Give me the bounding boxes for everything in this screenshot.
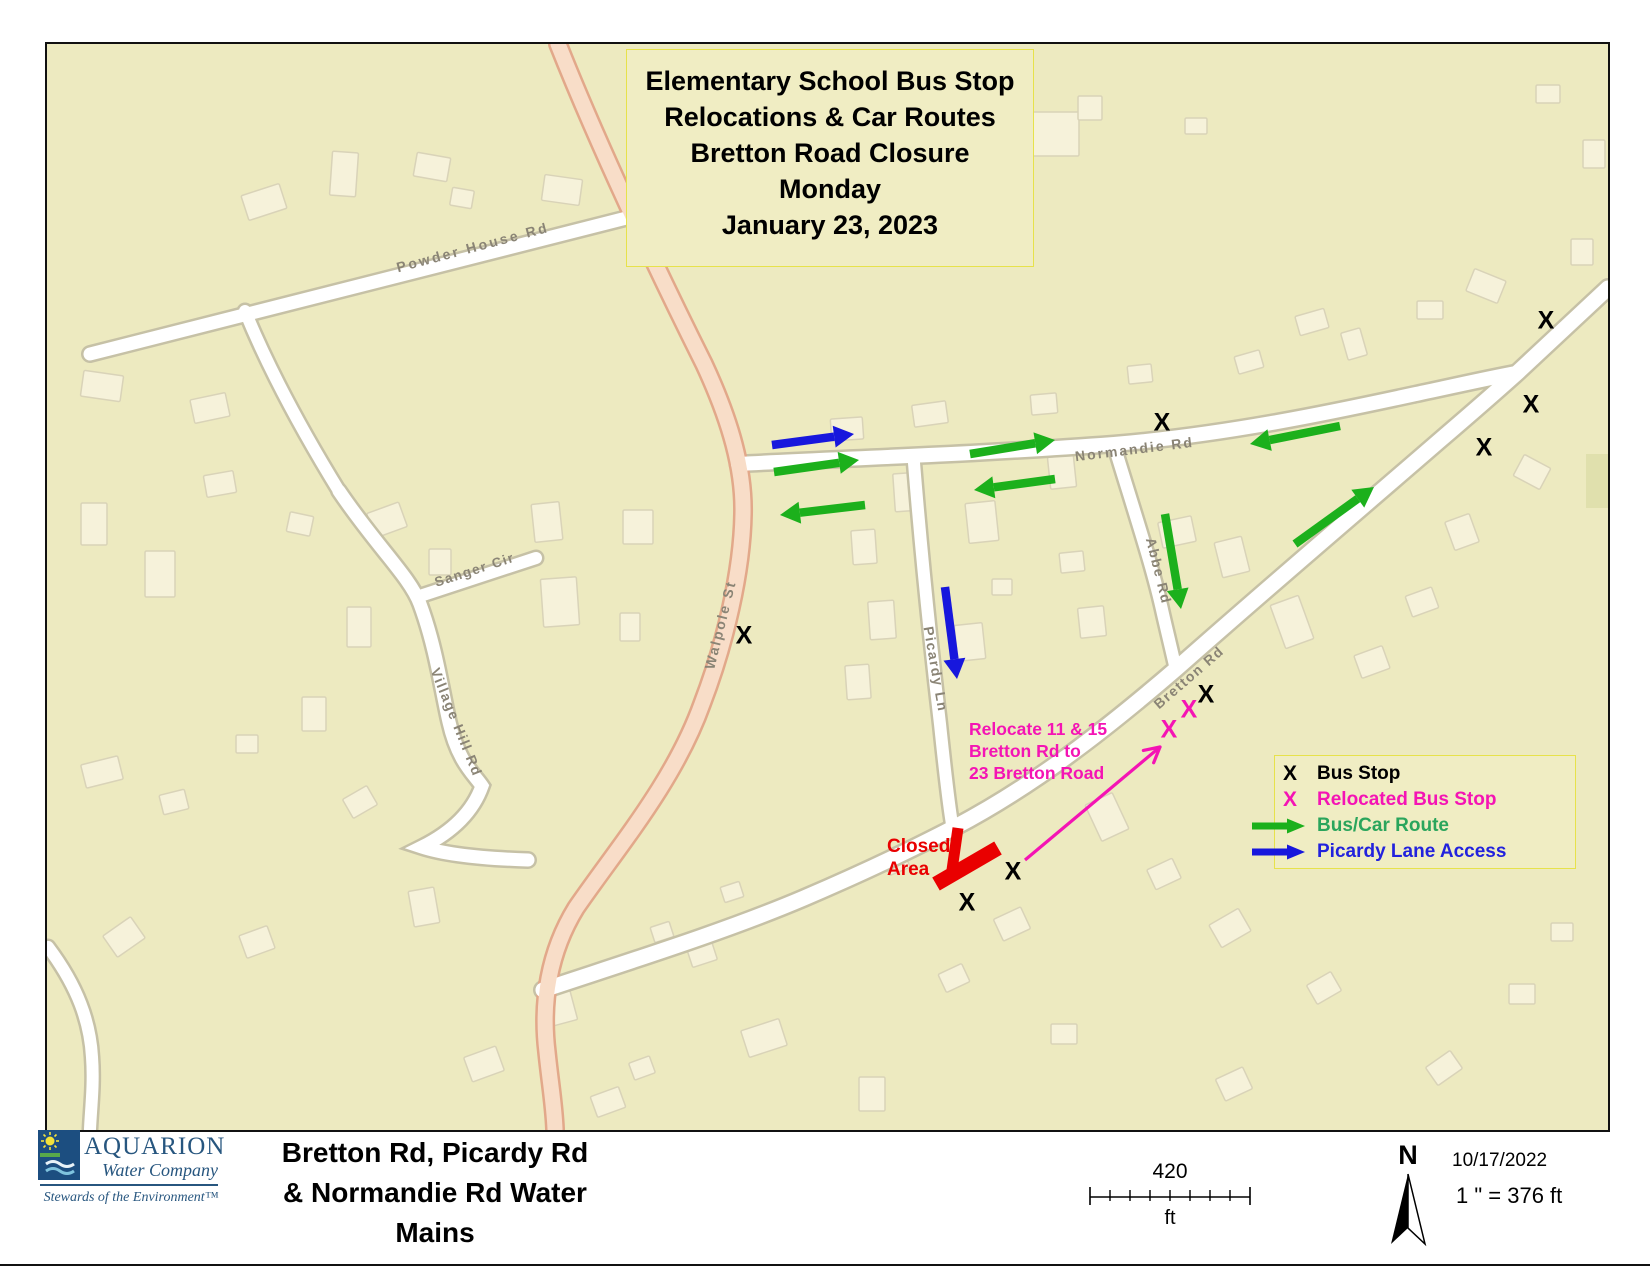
closed-area-label-line: Area [887,858,950,881]
relocation-note-line: 23 Bretton Road [969,762,1107,784]
house [954,623,986,662]
house [1551,923,1573,941]
title-line: Elementary School Bus Stop [627,63,1033,99]
closed-area-label-line: Closed [887,835,950,858]
aquarion-logo-icon [38,1130,80,1180]
house [1127,364,1153,384]
house [912,401,949,428]
house [1051,1024,1077,1044]
house [241,183,287,220]
map-sheet: Powder House RdVillage Hill RdSanger Cir… [0,0,1650,1275]
route-arrow-green [994,479,1055,487]
house [851,529,877,565]
bus-stop-marker: X [1523,391,1540,419]
house [1513,454,1551,489]
house [145,551,175,597]
legend-item-picardy-lane-access: Picardy Lane Access [1275,839,1575,865]
house [450,187,475,209]
house [590,1087,626,1118]
road-north-branch [245,311,339,491]
route-arrow-green-head [780,502,801,524]
title-line: Relocations & Car Routes [627,99,1033,135]
house [1078,606,1107,639]
title-line: Monday [627,171,1033,207]
bus-car-route-arrow-icon [1275,813,1317,839]
bus-stop-marker: X [1198,681,1215,709]
house [236,735,258,753]
house [81,756,124,788]
house [1059,551,1085,573]
house [1405,587,1439,617]
house [81,503,107,545]
house [1234,350,1264,374]
wooded-patch [1586,454,1608,508]
legend-item-bus-car-route: Bus/Car Route [1275,813,1575,839]
aquarion-logo-tagline: Stewards of the Environment™ [40,1190,222,1206]
house [629,1056,656,1080]
house [1583,140,1605,168]
house [1209,908,1251,948]
aquarion-logo-name: AQUARION [84,1133,220,1161]
house [620,613,640,641]
relocation-note-line: Relocate 11 & 15 [969,718,1107,740]
house [190,393,230,424]
house [80,370,123,401]
house [1215,1067,1252,1101]
relocated-x-glyph: X [1283,788,1297,812]
legend-label: Picardy Lane Access [1317,841,1506,863]
relocated-bus-stop-x-icon: X [1275,787,1317,813]
relocation-note-line: Bretton Rd to [969,740,1107,762]
house [1078,96,1102,120]
access-arrow-blue [945,587,954,659]
relocated-bus-stop-marker: X [1161,716,1178,744]
north-arrow-icon [1386,1170,1430,1248]
scale-bar [1088,1186,1252,1208]
house [1029,112,1079,156]
legend-item-bus-stop: X Bus Stop [1275,761,1575,787]
scale-bar-unit: ft [1088,1207,1252,1230]
bus-stop-marker: X [1154,409,1171,437]
house [1445,513,1480,550]
house [1571,239,1593,265]
closed-area-label: Closed Area [887,835,950,881]
sheet-title-line: Bretton Rd, Picardy Rd [260,1133,610,1173]
legend-label: Bus/Car Route [1317,815,1449,837]
house [1214,536,1250,578]
road-abbe-rd [1114,445,1176,670]
house [329,151,358,197]
house [1509,984,1535,1004]
relocation-note: Relocate 11 & 15 Bretton Rd to 23 Bretto… [969,718,1107,784]
house [1341,328,1368,360]
sheet-title: Bretton Rd, Picardy Rd & Normandie Rd Wa… [260,1133,610,1253]
legend: X Bus Stop X Relocated Bus Stop Bus/Car … [1274,755,1576,869]
sheet-title-line: & Normandie Rd Water [260,1173,610,1213]
title-line: Bretton Road Closure [627,135,1033,171]
house [859,1077,885,1111]
house [302,697,326,731]
house [342,785,377,818]
bus-stop-marker: X [1005,858,1022,886]
house [159,789,189,815]
house [992,579,1012,595]
legend-item-relocated-bus-stop: X Relocated Bus Stop [1275,787,1575,813]
house [868,600,897,640]
house [286,512,314,537]
access-arrow-blue [772,437,834,445]
house [203,471,236,498]
house [623,510,653,544]
bus-stop-x-glyph: X [1283,762,1297,786]
map-date: 10/17/2022 [1452,1150,1547,1172]
logo-divider [40,1184,218,1186]
scale-bar-value: 420 [1088,1160,1252,1184]
house [741,1019,788,1058]
house [103,917,146,958]
house [1047,455,1076,490]
aquarion-logo-subtitle: Water Company [84,1160,218,1181]
route-arrow-green-head [974,476,995,498]
house [408,887,440,927]
bus-stop-marker: X [736,622,753,650]
relocated-bus-stop-marker: X [1181,696,1198,724]
house [1466,269,1507,304]
house [531,502,563,543]
house [347,607,371,647]
house [413,152,451,182]
house [965,501,999,544]
house [1185,118,1207,134]
bus-stop-marker: X [1476,434,1493,462]
map-title-box: Elementary School Bus Stop Relocations &… [626,49,1034,267]
legend-label: Relocated Bus Stop [1317,789,1496,811]
sheet-title-line: Mains [260,1213,610,1253]
house [1536,85,1560,103]
green-arrow-icon [1249,817,1307,835]
access-arrow-blue-head [944,658,966,679]
north-label: N [1388,1140,1428,1171]
legend-label: Bus Stop [1317,763,1400,785]
house [1295,308,1329,335]
house [845,664,871,700]
map-scale-ratio: 1 " = 376 ft [1456,1183,1562,1209]
house [1270,595,1314,648]
road-label-picardy-ln: Picardy Ln [921,625,952,713]
house [1306,971,1341,1004]
road-bottom-left-rd [48,947,93,1129]
bus-stop-marker: X [1538,307,1555,335]
house [1085,793,1129,842]
house [720,881,744,902]
house [541,174,582,205]
house [1147,858,1182,890]
sheet-border-bottom [0,1264,1650,1266]
house [1417,301,1443,319]
map-frame: Powder House RdVillage Hill RdSanger Cir… [45,42,1610,1132]
house [993,907,1030,941]
blue-arrow-icon [1249,843,1307,861]
house [239,926,275,959]
route-arrow-green [800,505,865,513]
picardy-access-arrow-icon [1275,839,1317,865]
title-line: January 23, 2023 [627,207,1033,243]
bus-stop-marker: X [959,889,976,917]
bus-stop-x-icon: X [1275,761,1317,787]
house [1425,1050,1462,1085]
house [1354,646,1390,679]
house [1030,393,1058,415]
road-powder-house-rd [90,208,666,354]
house [540,577,579,627]
house [464,1046,505,1082]
house [938,963,970,992]
